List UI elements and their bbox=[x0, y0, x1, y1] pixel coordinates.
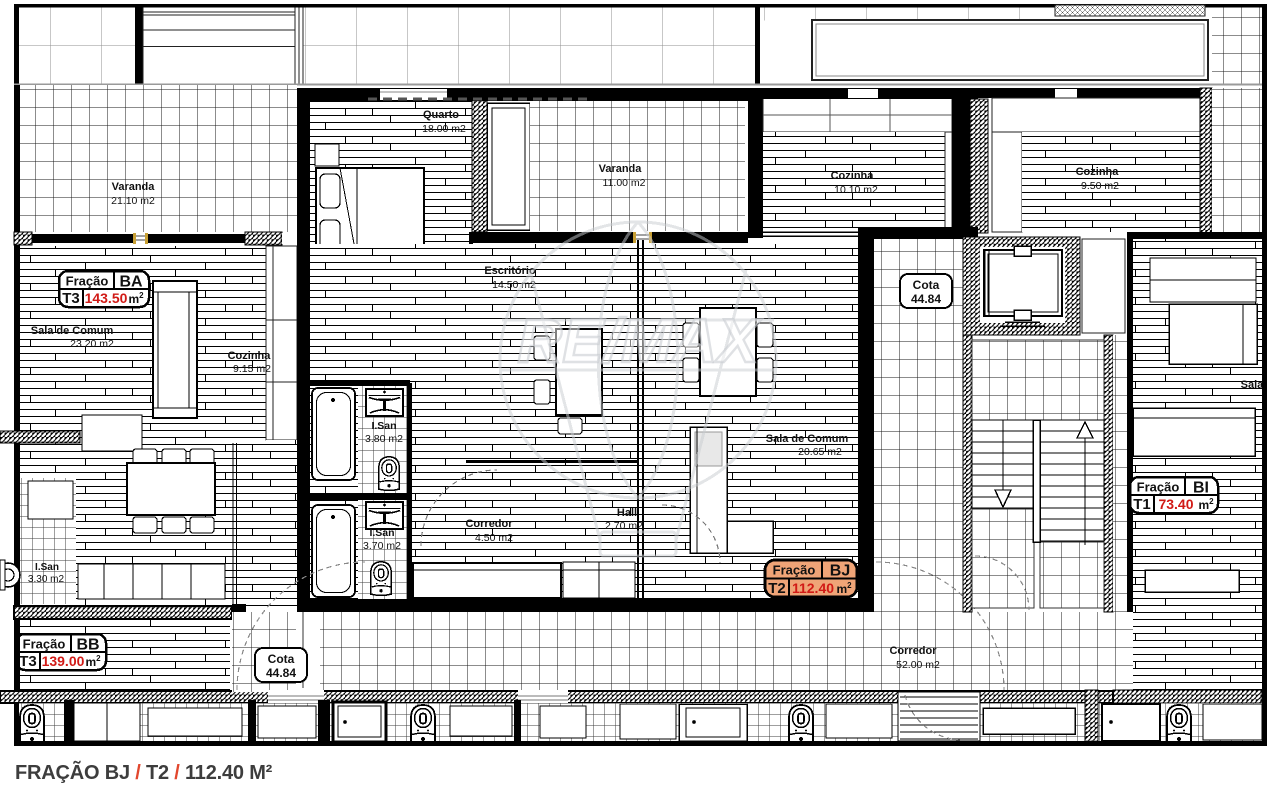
svg-text:Sala de Comum: Sala de Comum bbox=[31, 325, 114, 337]
svg-text:11.00 m2: 11.00 m2 bbox=[603, 177, 646, 189]
svg-text:Varanda: Varanda bbox=[599, 163, 643, 175]
svg-text:112.40: 112.40 bbox=[792, 580, 834, 596]
svg-text:21.10 m2: 21.10 m2 bbox=[111, 195, 155, 207]
svg-text:BI: BI bbox=[1193, 480, 1209, 497]
svg-text:FRAÇÃO BJ / T2 / 112.40 M²: FRAÇÃO BJ / T2 / 112.40 M² bbox=[15, 761, 273, 784]
svg-text:Cota: Cota bbox=[268, 652, 295, 666]
svg-text:BB: BB bbox=[76, 637, 99, 654]
svg-text:T3: T3 bbox=[19, 653, 37, 670]
svg-text:Corredor: Corredor bbox=[889, 645, 937, 657]
svg-text:Cozinha: Cozinha bbox=[831, 170, 875, 182]
svg-text:3.70 m2: 3.70 m2 bbox=[363, 540, 401, 552]
svg-text:Hall: Hall bbox=[617, 507, 637, 519]
svg-text:3.30 m2: 3.30 m2 bbox=[28, 574, 65, 585]
svg-text:139.00: 139.00 bbox=[42, 653, 85, 669]
svg-text:T1: T1 bbox=[1133, 496, 1151, 513]
svg-text:23.20 m2: 23.20 m2 bbox=[70, 338, 114, 350]
svg-text:BA: BA bbox=[119, 274, 143, 291]
svg-text:Corredor: Corredor bbox=[465, 518, 513, 530]
svg-text:BJ: BJ bbox=[830, 563, 850, 580]
svg-text:2.70 m2: 2.70 m2 bbox=[605, 520, 643, 532]
svg-text:T2: T2 bbox=[768, 580, 786, 597]
svg-text:44.84: 44.84 bbox=[911, 292, 941, 306]
svg-text:143.50: 143.50 bbox=[85, 290, 128, 306]
svg-text:Sala: Sala bbox=[1241, 379, 1265, 391]
svg-text:T3: T3 bbox=[62, 290, 80, 307]
svg-text:Fração: Fração bbox=[66, 274, 109, 289]
svg-text:Cozinha: Cozinha bbox=[228, 350, 272, 362]
svg-text:Cozinha: Cozinha bbox=[1076, 166, 1120, 178]
svg-text:4.50 m2: 4.50 m2 bbox=[475, 532, 513, 544]
svg-text:I.San: I.San bbox=[371, 420, 396, 432]
svg-text:18.00 m2: 18.00 m2 bbox=[422, 123, 466, 135]
svg-text:Varanda: Varanda bbox=[112, 181, 156, 193]
svg-text:I.San: I.San bbox=[35, 562, 59, 573]
svg-text:I.San: I.San bbox=[369, 527, 394, 539]
svg-text:3.80 m2: 3.80 m2 bbox=[365, 433, 403, 445]
svg-text:44.84: 44.84 bbox=[266, 666, 296, 680]
svg-text:Quarto: Quarto bbox=[423, 109, 459, 121]
svg-text:RE/MAX: RE/MAX bbox=[517, 307, 762, 376]
svg-text:Fração: Fração bbox=[23, 637, 66, 652]
svg-text:52.00 m2: 52.00 m2 bbox=[896, 659, 940, 671]
svg-text:Fração: Fração bbox=[773, 563, 816, 578]
svg-text:9.15 m2: 9.15 m2 bbox=[233, 363, 271, 375]
svg-text:Fração: Fração bbox=[1137, 480, 1180, 495]
svg-text:Cota: Cota bbox=[913, 278, 940, 292]
svg-text:14.50 m2: 14.50 m2 bbox=[492, 279, 536, 291]
svg-text:73.40: 73.40 bbox=[1158, 496, 1193, 512]
svg-text:9.50 m2: 9.50 m2 bbox=[1081, 180, 1119, 192]
svg-text:20.65 m2: 20.65 m2 bbox=[798, 446, 842, 458]
svg-text:Sala de Comum: Sala de Comum bbox=[766, 433, 849, 445]
svg-text:10.10 m2: 10.10 m2 bbox=[834, 184, 878, 196]
